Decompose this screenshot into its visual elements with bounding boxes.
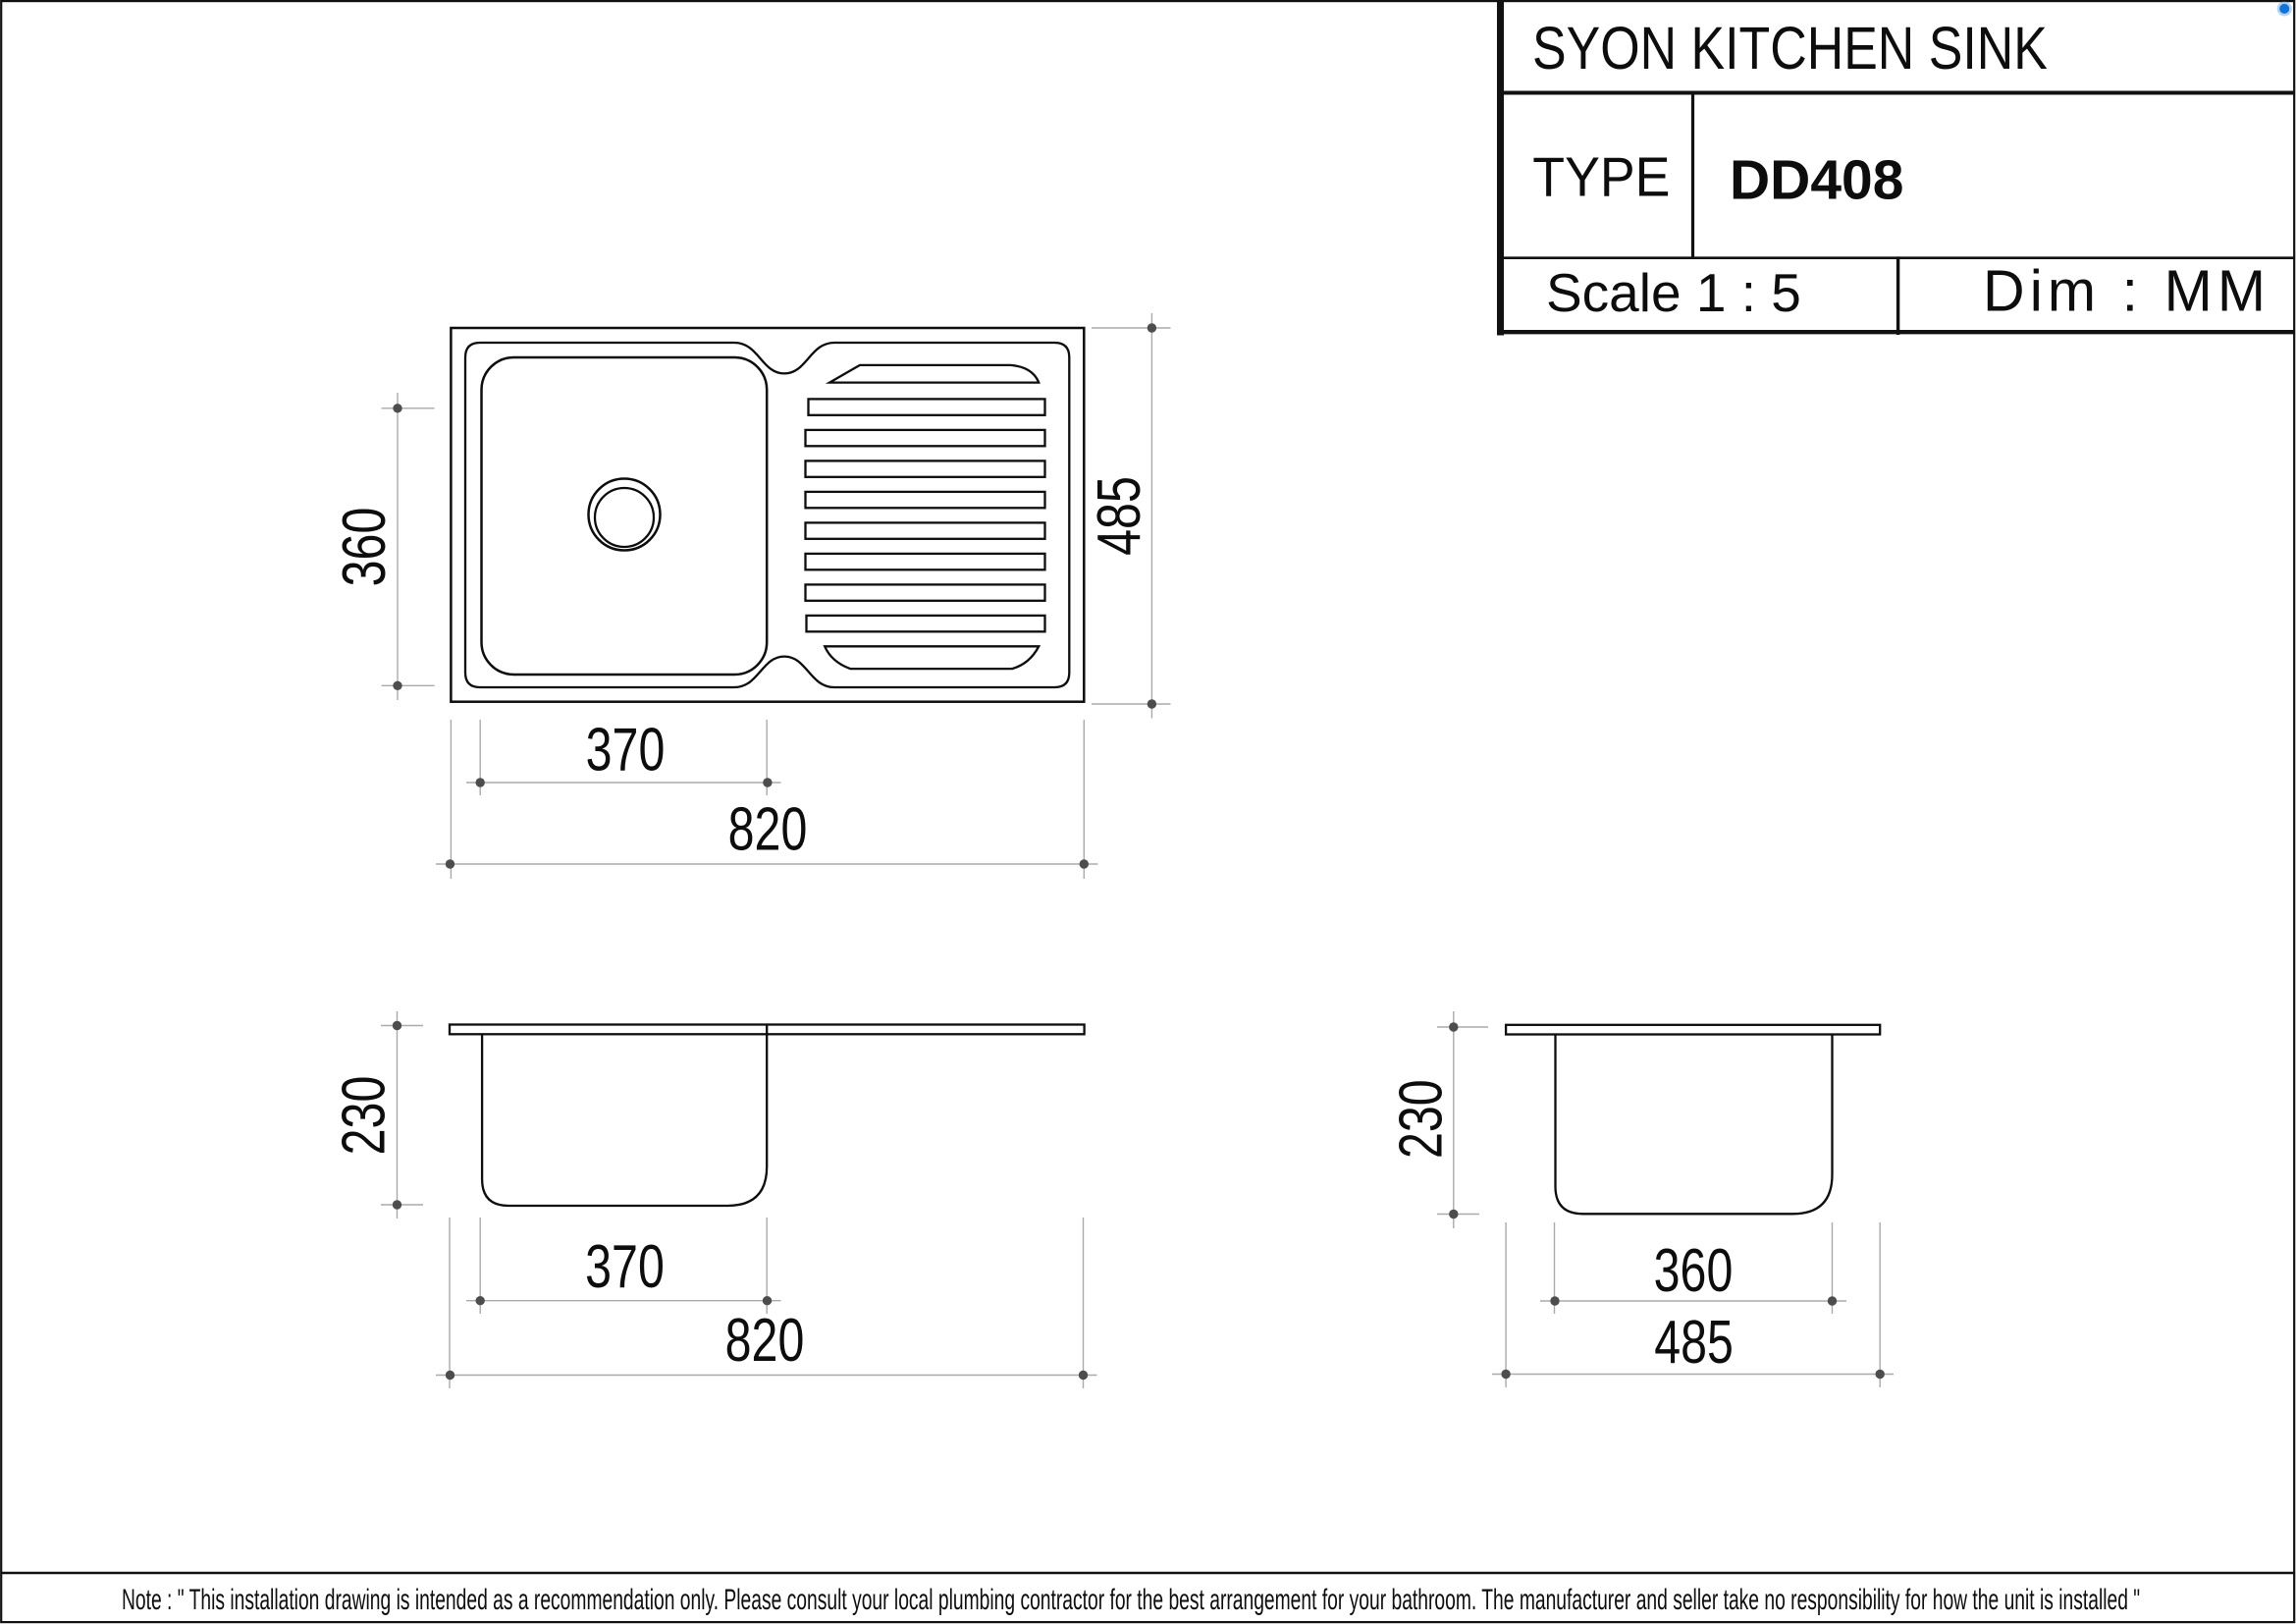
svg-text:Note : " This installation dra: Note : " This installation drawing is in… xyxy=(122,1584,2140,1616)
svg-text:370: 370 xyxy=(586,716,666,784)
svg-text:DD408: DD408 xyxy=(1730,148,1903,211)
svg-text:TYPE: TYPE xyxy=(1532,145,1670,208)
svg-text:370: 370 xyxy=(585,1232,665,1300)
svg-text:820: 820 xyxy=(728,795,808,863)
svg-text:485: 485 xyxy=(1085,476,1152,556)
svg-text:485: 485 xyxy=(1654,1308,1734,1376)
svg-text:SYON KITCHEN SINK: SYON KITCHEN SINK xyxy=(1532,16,2048,82)
svg-text:Dim : MM: Dim : MM xyxy=(1983,259,2270,324)
svg-text:230: 230 xyxy=(330,1076,398,1156)
svg-text:230: 230 xyxy=(1387,1079,1455,1159)
svg-text:360: 360 xyxy=(330,508,398,587)
svg-text:820: 820 xyxy=(725,1306,805,1374)
svg-text:360: 360 xyxy=(1654,1236,1734,1304)
svg-text:Scale 1 : 5: Scale 1 : 5 xyxy=(1546,262,1801,323)
